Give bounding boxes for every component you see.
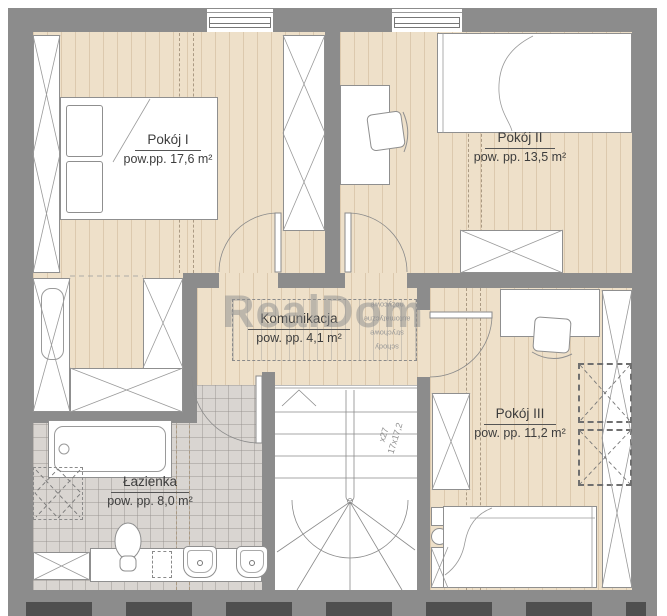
wardrobe-left <box>33 35 60 273</box>
washbasin <box>183 546 217 578</box>
wall-mid-right <box>407 273 632 288</box>
bed-pokoj-iii <box>443 506 597 588</box>
label-lazienka: Łazienka pow. pp. 8,0 m² <box>70 472 230 510</box>
bathroom-cabinet <box>33 552 90 580</box>
room-area: pow.pp. 17,6 m² <box>88 152 248 168</box>
wall-left <box>8 8 33 590</box>
counter-dashed-unit <box>152 551 172 578</box>
label-pokoj-iii: Pokój III pow. pp. 11,2 m² <box>440 404 600 442</box>
window-sill-line <box>392 12 462 13</box>
wall-top <box>8 8 657 32</box>
window-pokoj-i <box>207 9 273 32</box>
realdom-watermark: RealDom <box>222 286 424 338</box>
closet-unit-c <box>70 368 183 412</box>
wall-bottom-dashes <box>26 602 646 616</box>
dresser-pokoj-ii <box>460 230 563 273</box>
label-pokoj-i: Pokój I pow.pp. 17,6 m² <box>88 130 248 168</box>
desk-pokoj-iii <box>500 289 600 337</box>
wardrobe-right <box>283 35 325 231</box>
bed-pokoj-ii <box>437 33 632 133</box>
window-pokoj-ii <box>392 9 462 32</box>
wall-right <box>632 8 657 590</box>
wall-pokoj-iii-left-lower <box>417 377 430 590</box>
pillow <box>66 161 103 213</box>
desk-pokoj-ii <box>340 85 390 185</box>
closet-mirror <box>41 288 64 360</box>
attic-note-line: schody <box>356 340 418 354</box>
room-area: pow. pp. 13,5 m² <box>440 150 600 166</box>
window-frame <box>394 17 460 28</box>
wall-komunikacja-left <box>183 273 197 423</box>
room-name: Pokój I <box>135 132 200 151</box>
wall-pokoj-i-ii <box>325 32 340 273</box>
label-pokoj-ii: Pokój II pow. pp. 13,5 m² <box>440 128 600 166</box>
room-area: pow. pp. 11,2 m² <box>440 426 600 442</box>
closet-unit-b <box>143 278 183 370</box>
room-name: Pokój II <box>485 130 554 149</box>
room-area: pow. pp. 8,0 m² <box>70 494 230 510</box>
floor-plan: Pokój I pow.pp. 17,6 m² Pokój II pow. pp… <box>0 0 667 616</box>
window-frame <box>209 17 271 28</box>
room-name: Pokój III <box>484 406 557 425</box>
room-name: Łazienka <box>111 474 189 493</box>
bathtub-inner <box>54 426 166 472</box>
window-sill-line <box>207 12 273 13</box>
washbasin <box>236 546 268 578</box>
